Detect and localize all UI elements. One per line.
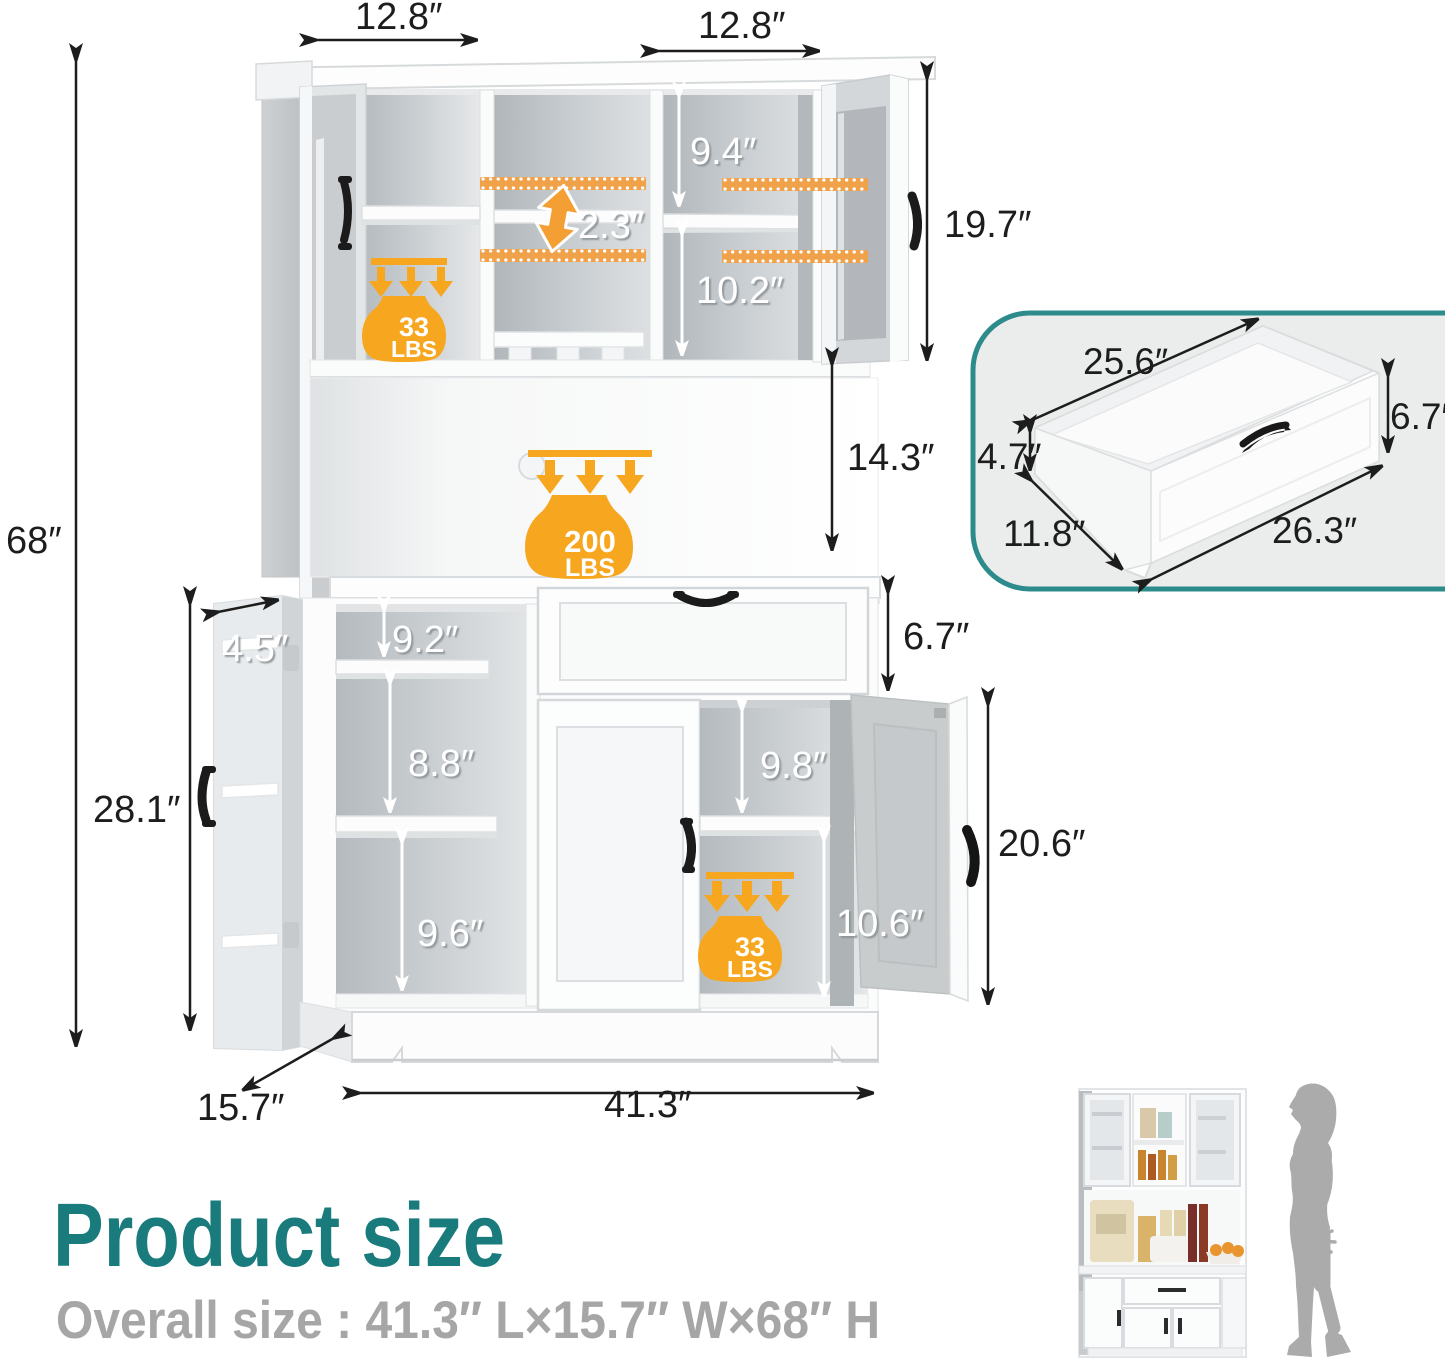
svg-text:14.3″: 14.3″ <box>847 437 934 479</box>
svg-text:9.6″: 9.6″ <box>417 913 483 955</box>
svg-text:10.6″: 10.6″ <box>836 903 923 945</box>
svg-text:8.8″: 8.8″ <box>408 743 474 785</box>
svg-text:4.5″: 4.5″ <box>222 628 288 670</box>
svg-text:41.3″: 41.3″ <box>604 1084 691 1126</box>
svg-text:4.7″: 4.7″ <box>977 436 1042 477</box>
svg-text:LBS: LBS <box>565 554 615 582</box>
svg-text:26.3″: 26.3″ <box>1272 510 1357 551</box>
svg-text:Product size: Product size <box>53 1186 505 1286</box>
svg-text:9.8″: 9.8″ <box>760 745 826 787</box>
svg-text:Overall size : 41.3″ L×15.7″ W: Overall size : 41.3″ L×15.7″ W×68″ H <box>56 1291 880 1350</box>
svg-text:12.8″: 12.8″ <box>355 0 442 38</box>
svg-text:28.1″: 28.1″ <box>93 789 180 831</box>
svg-text:19.7″: 19.7″ <box>944 204 1031 246</box>
svg-text:6.7″: 6.7″ <box>903 616 969 658</box>
svg-text:20.6″: 20.6″ <box>998 823 1085 865</box>
svg-text:11.8″: 11.8″ <box>1003 513 1085 554</box>
svg-text:12.8″: 12.8″ <box>698 5 785 47</box>
svg-text:15.7″: 15.7″ <box>197 1087 284 1129</box>
svg-text:6.7″: 6.7″ <box>1390 396 1445 437</box>
svg-text:2.3″: 2.3″ <box>578 205 644 247</box>
svg-text:LBS: LBS <box>727 956 773 982</box>
svg-text:25.6″: 25.6″ <box>1083 341 1168 382</box>
svg-text:10.2″: 10.2″ <box>696 270 783 312</box>
svg-text:9.4″: 9.4″ <box>690 131 756 173</box>
svg-text:68″: 68″ <box>6 520 62 562</box>
svg-text:LBS: LBS <box>391 336 437 362</box>
svg-text:9.2″: 9.2″ <box>392 619 458 661</box>
